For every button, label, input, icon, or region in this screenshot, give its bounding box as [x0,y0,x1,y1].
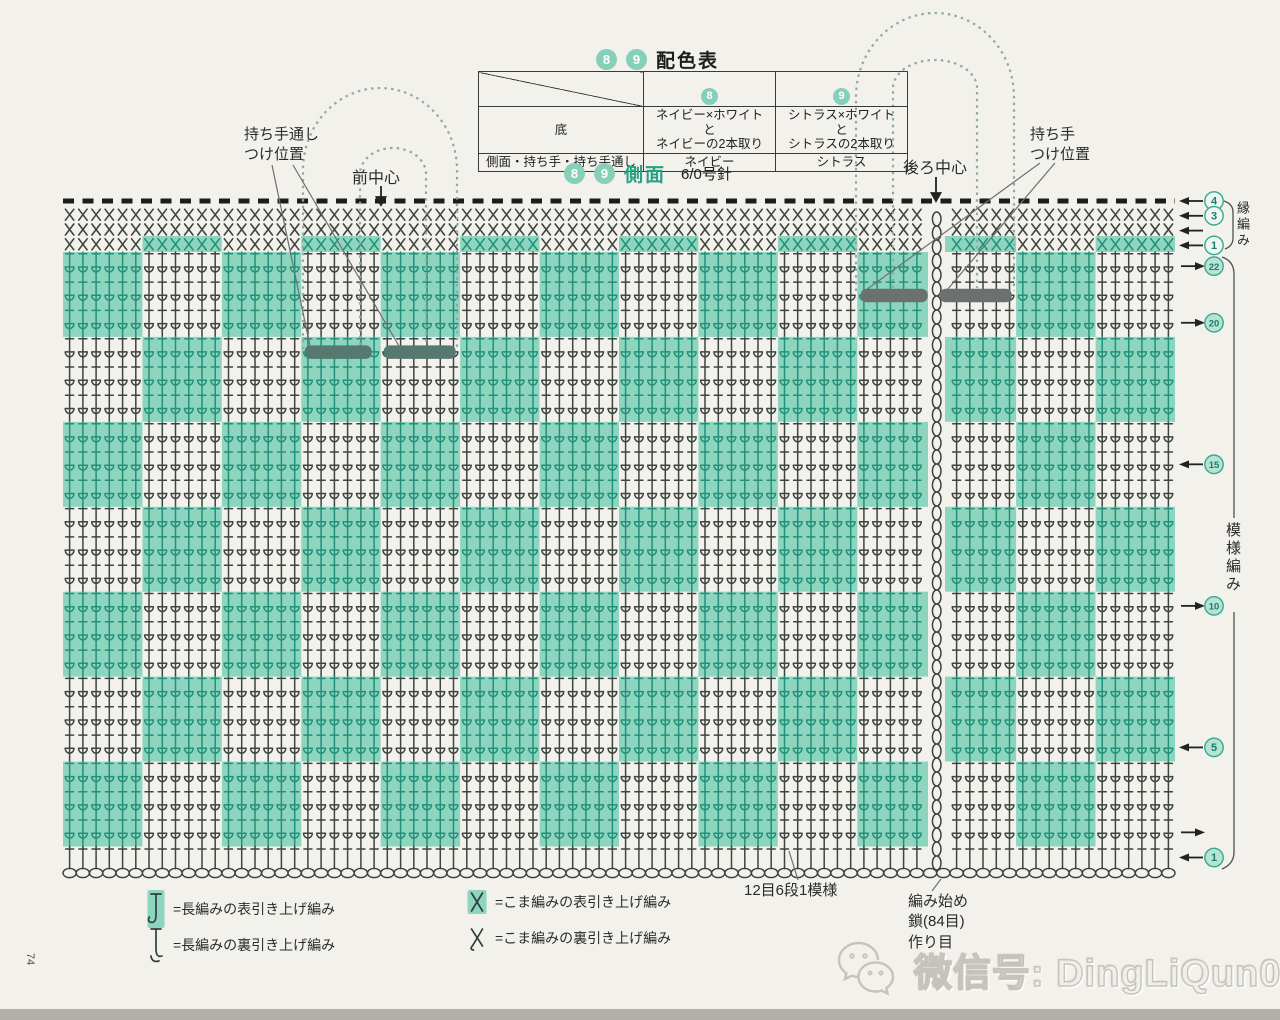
svg-text:22: 22 [1209,262,1220,273]
front-center-label: 前中心 [352,169,400,190]
checkerboard-blocks [63,236,1175,847]
edge-band-label: 縁編み [1233,201,1252,249]
sc-back-post-raised-icon [466,925,488,951]
pattern-band-label: 模様編み [1222,522,1243,594]
page-corner-mark: 74 [24,953,36,965]
color-table-slash-cell [479,72,644,107]
dc-front-post-raised-icon [146,889,166,929]
svg-text:1: 1 [1211,240,1217,252]
badge-8-icon: 8 [564,163,585,184]
legend-item-sc-back-post: =こま編みの裏引き上げ編み [466,925,671,951]
table-cell: ネイビー×ホワイトと ネイビーの2本取り [644,106,776,153]
badge-8-icon: 8 [701,88,718,105]
crochet-pattern-page: 4312220151051 8 9 配色表 8 9 底 ネイビー×ホワイトと ネ… [0,0,1280,1020]
table-row-label: 底 [479,106,644,153]
section-title-text: 側面 [624,160,666,187]
watermark-text: 微信号: DingLiQun0830 [914,942,1280,997]
table-cell: シトラス×ホワイトと シトラスの2本取り [776,106,908,153]
wechat-icon [834,938,906,1000]
handle-attach-position-label: 持ち手 つけ位置 [1030,125,1090,164]
legend-label: =長編みの表引き上げ編み [173,899,335,919]
handle-through-position-label: 持ち手通し つけ位置 [244,125,319,164]
legend-item-sc-front-post: =こま編みの表引き上げ編み [466,889,671,915]
section-title: 8 9 側面 6/0号針 [564,160,732,187]
svg-text:4: 4 [1211,196,1218,208]
pattern-repeat-label: 12目6段1模様 [744,881,837,901]
color-table: 8 9 底 ネイビー×ホワイトと ネイビーの2本取り シトラス×ホワイトと シト… [478,71,908,172]
sc-front-post-raised-icon [466,889,488,915]
badge-8-icon: 8 [596,49,617,70]
row-number-markers: 4312220151051 [1179,192,1223,867]
needle-size: 6/0号針 [681,163,732,184]
back-center-chain-column [932,212,941,870]
badge-9-icon: 9 [626,49,647,70]
legend-item-dc-front-post: =長編みの表引き上げ編み [146,889,335,929]
color-table-title: 8 9 配色表 [596,46,719,73]
legend-label: =こま編みの裏引き上げ編み [495,928,671,948]
color-table-col8-header: 8 [644,72,776,107]
legend-label: =長編みの裏引き上げ編み [173,935,335,955]
svg-text:20: 20 [1209,318,1220,329]
legend-label: =こま編みの表引き上げ編み [495,892,671,912]
color-table-title-text: 配色表 [656,46,719,73]
svg-text:3: 3 [1211,211,1217,223]
svg-text:5: 5 [1211,742,1217,754]
back-center-label: 後ろ中心 [903,159,967,180]
wechat-watermark: 微信号: DingLiQun0830 [834,938,1280,1000]
badge-9-icon: 9 [594,163,615,184]
dc-back-post-raised-icon [146,925,166,965]
table-cell: シトラス [776,154,908,172]
svg-text:10: 10 [1209,602,1220,613]
svg-text:1: 1 [1211,852,1217,864]
badge-9-icon: 9 [833,88,850,105]
legend-item-dc-back-post: =長編みの裏引き上げ編み [146,925,335,965]
svg-text:15: 15 [1209,460,1220,471]
color-table-col9-header: 9 [776,72,908,107]
page-bottom-edge [0,1009,1280,1020]
